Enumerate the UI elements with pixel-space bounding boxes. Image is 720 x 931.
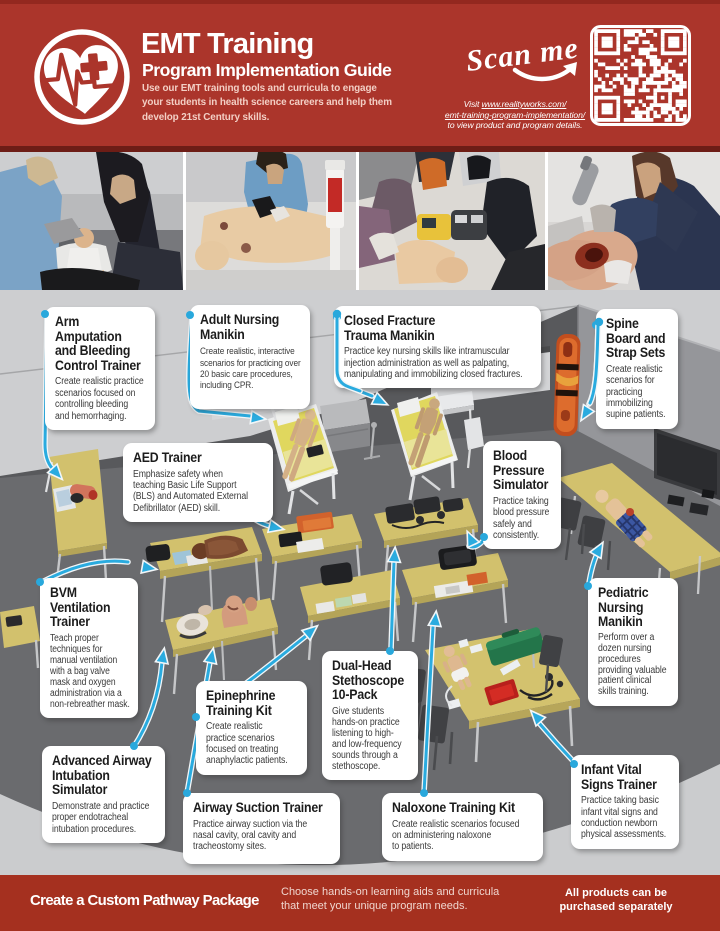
svg-text:Scan me: Scan me (464, 32, 580, 79)
